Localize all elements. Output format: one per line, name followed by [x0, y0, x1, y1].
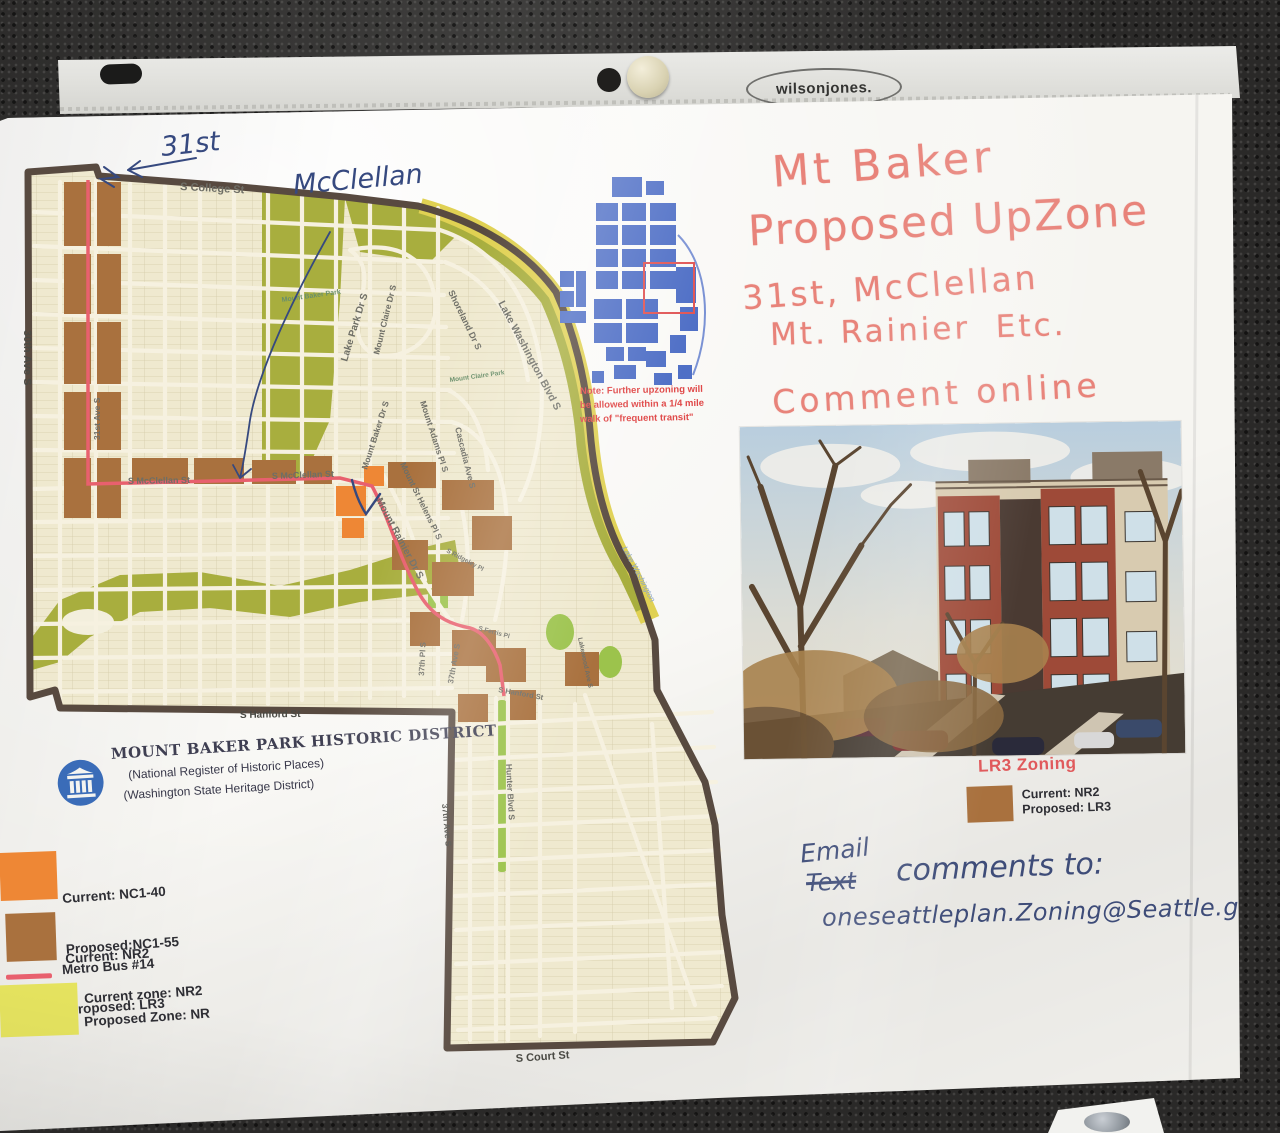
inset-note-line1: Note: Further upzoning will: [580, 384, 703, 397]
comments-to-note: comments to:: [895, 846, 1104, 888]
inset-note: Note: Further upzoning will be allowed w…: [579, 384, 704, 425]
legend-swatch-yellow: [0, 983, 79, 1038]
street-label-hanford-1: S Hanford St: [240, 709, 301, 721]
pen-note-mcclellan: McClellan: [292, 159, 424, 201]
street-label-30th: 30th Ave S: [21, 330, 33, 385]
street-label-mcclellan-1: S McClellan St: [128, 475, 190, 486]
lr3-heading: LR3 Zoning: [978, 753, 1077, 776]
pen-note-31st: 31st: [159, 126, 222, 163]
photo-scene: wilsonjones.: [0, 0, 1280, 1133]
inset-note-line3: walk of "frequent transit": [579, 412, 694, 425]
street-label-court: S Court St: [515, 1049, 570, 1065]
street-label-37th-pl: 37th Pl S: [417, 641, 428, 676]
card-object: [1084, 1112, 1130, 1132]
legend-swatch-brown: [5, 912, 57, 962]
struck-text-word: Text: [805, 867, 856, 898]
lr3-labels: Current: NR2 Proposed: LR3: [1022, 784, 1112, 817]
building-photo: [740, 421, 1186, 759]
flyer-paper: S College St 30th Ave S 31st Ave S S McC…: [0, 0, 1280, 1133]
lr3-proposed: Proposed: LR3: [1022, 799, 1111, 817]
street-label-31st: 31st Ave S: [92, 397, 102, 440]
building-photo-illustration: [740, 421, 1186, 759]
legend-swatch-orange: [0, 851, 58, 901]
inset-note-line2: be allowed within a 1/4 mile: [580, 398, 704, 411]
lr3-brown-swatch: [966, 785, 1013, 823]
historic-district-logo: [55, 757, 106, 808]
legend-nc1-current: Current: NC1-40: [62, 882, 176, 907]
